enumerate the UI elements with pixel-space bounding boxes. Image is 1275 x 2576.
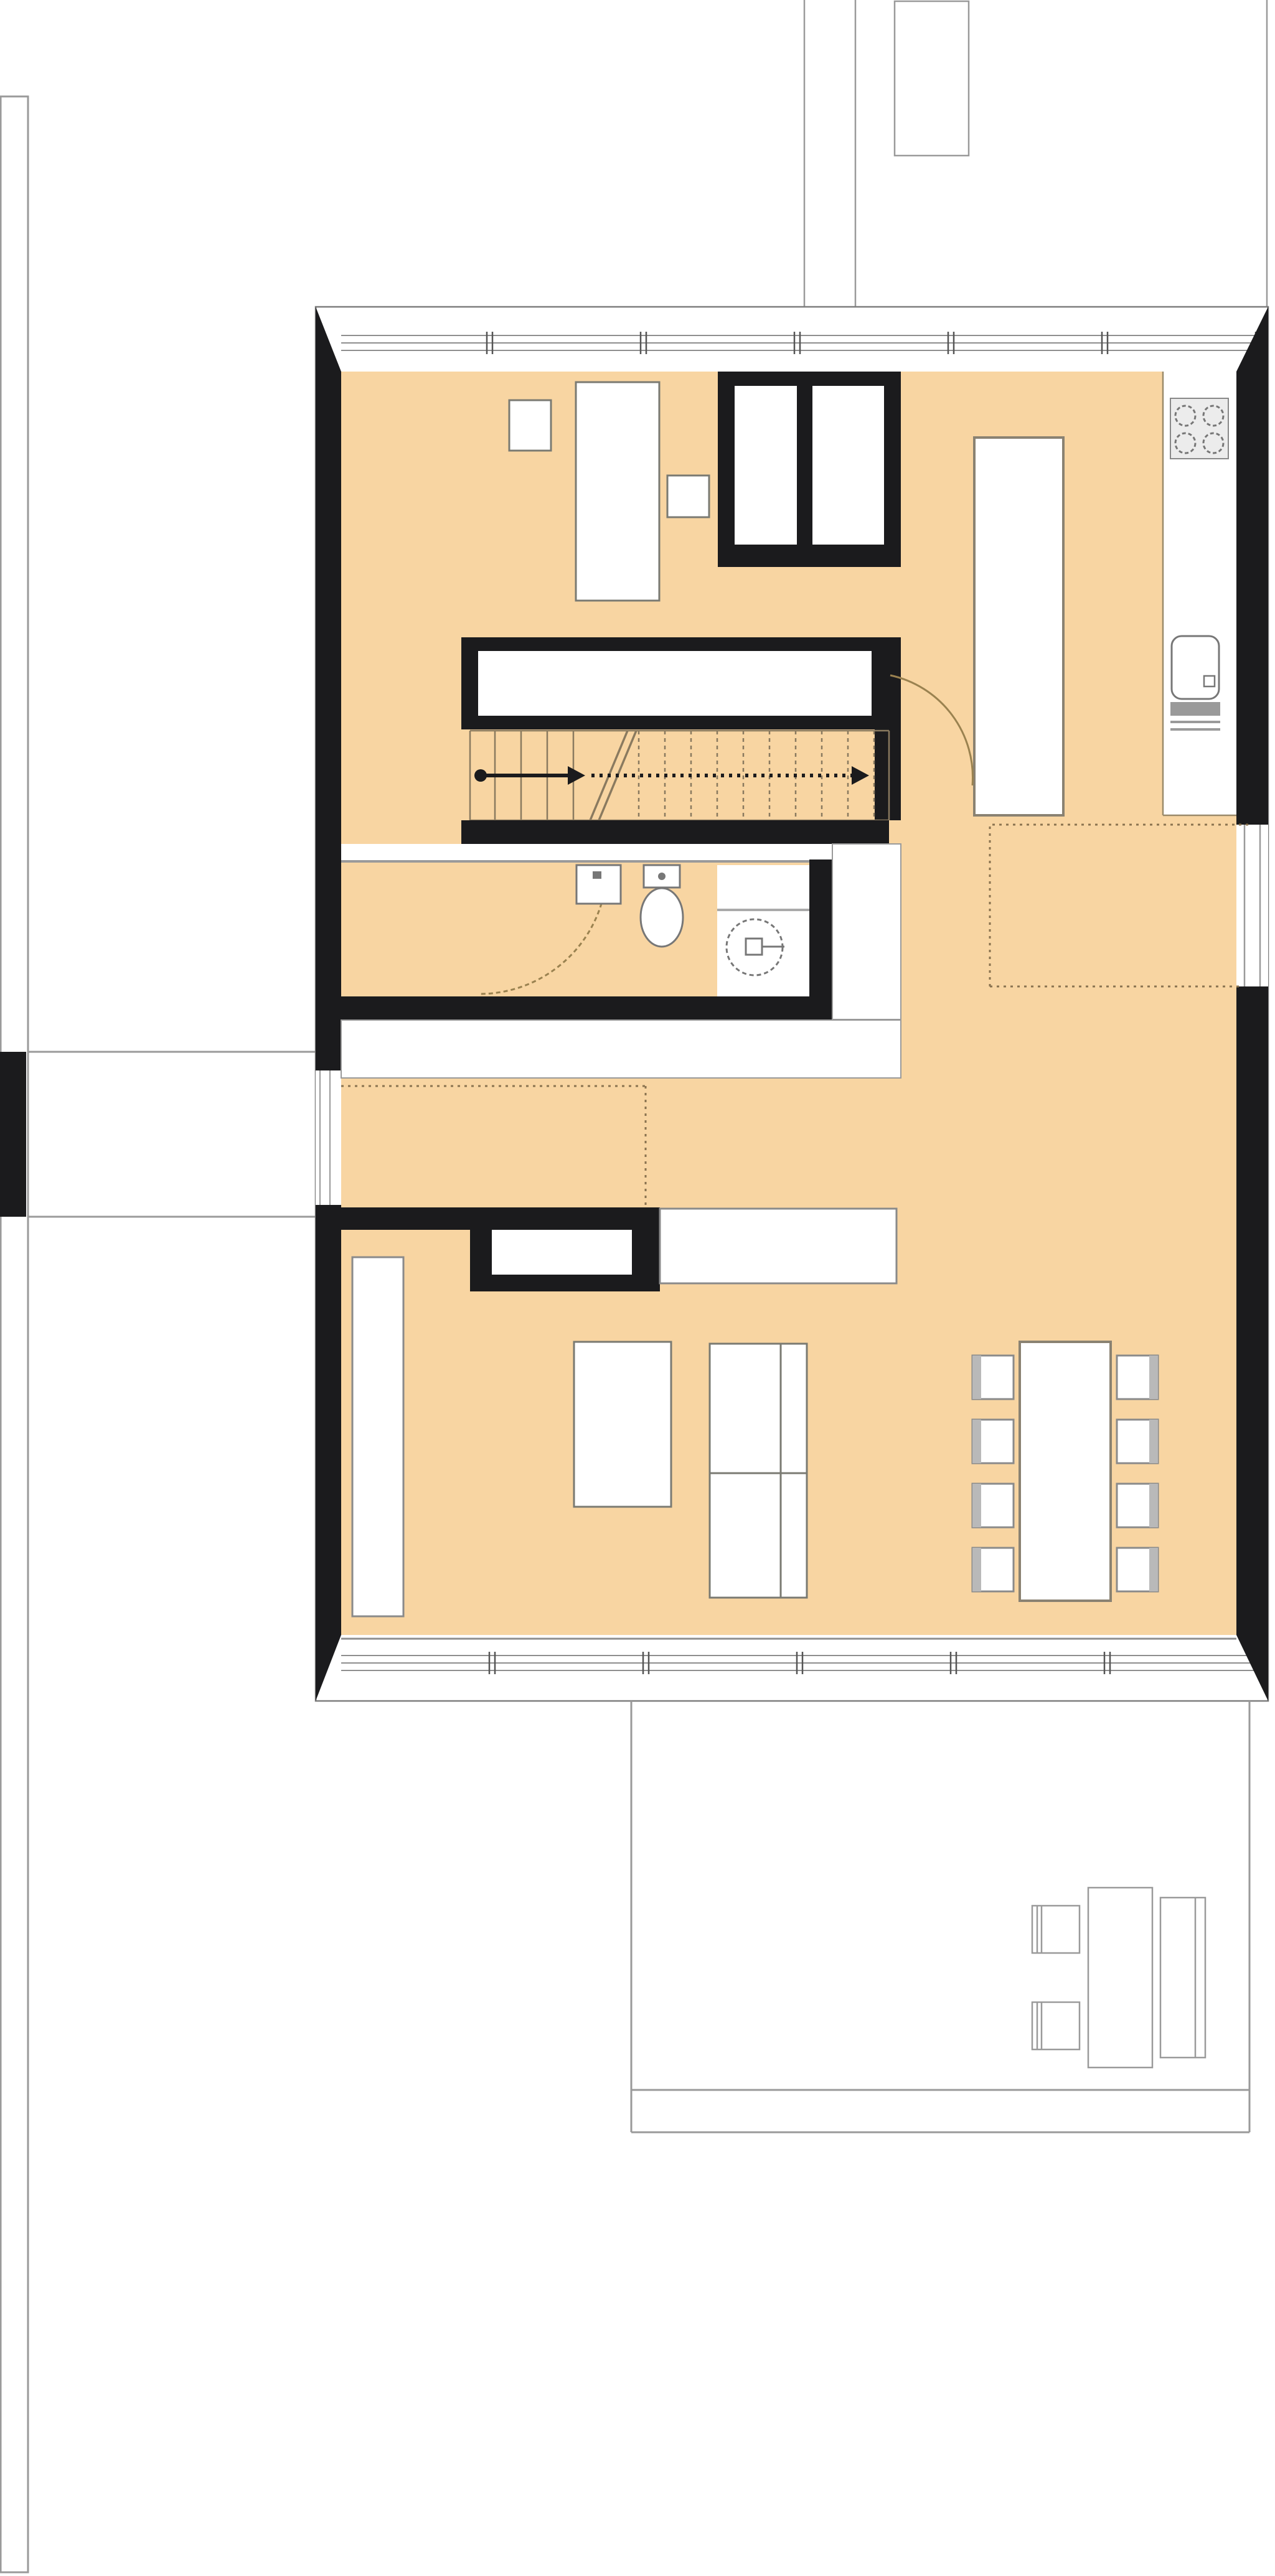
closet-living [660, 1209, 896, 1283]
terrace-chair [1032, 1906, 1080, 1953]
dining-chair [972, 1420, 1014, 1463]
closet-niche [492, 1230, 632, 1275]
porch-wall-block [0, 1052, 26, 1217]
stair-lower-wall [461, 820, 889, 844]
wardrobe-left-wall [352, 1257, 403, 1616]
kitchen-counter-group [1163, 372, 1236, 815]
terrace-door-opening [1236, 825, 1268, 986]
bathroom-partition-gap [341, 844, 889, 863]
dining-chair [1117, 1420, 1158, 1463]
partition-wall [341, 1207, 660, 1230]
terrace-furniture [1032, 1888, 1205, 2068]
dining-chair [972, 1484, 1014, 1527]
floor-plan-drawing [0, 0, 1275, 2576]
service-strip-horizontal [341, 1020, 901, 1078]
closet-top-middle [718, 372, 901, 567]
bed-single [576, 382, 659, 601]
nightstand [667, 475, 709, 517]
stove-icon [1170, 398, 1228, 459]
dining-chair [1117, 1356, 1158, 1399]
nightstand [509, 400, 551, 451]
washbasin-icon [576, 865, 621, 904]
floor-plan-page [0, 0, 1275, 2576]
desk [574, 1342, 671, 1507]
terrace-table [1088, 1888, 1152, 2068]
wall-left-lower [316, 1205, 341, 1635]
entrance-opening [316, 1070, 341, 1205]
bathroom-bottom-wall [341, 996, 832, 1020]
entrance-porch-group [0, 1052, 321, 1217]
dining-chair [1117, 1484, 1158, 1527]
stair-side-wall [875, 729, 901, 820]
wall-right-lower [1236, 986, 1268, 1635]
stair-closet-interior [478, 651, 872, 716]
dining-chair [972, 1548, 1014, 1591]
dining-chair [1117, 1548, 1158, 1591]
wall-right-upper [1236, 372, 1268, 825]
site-strip-group [1, 96, 28, 2572]
laundry-niche [717, 865, 809, 996]
dining-chair [972, 1356, 1014, 1399]
service-strip-vertical [832, 844, 901, 1019]
terrace-sideboard [1160, 1898, 1205, 2058]
terrace [631, 1701, 1249, 2132]
bed-double [710, 1344, 807, 1598]
upper-court-group [804, 0, 1268, 307]
closet-compartment [735, 386, 797, 545]
toilet-icon [641, 865, 683, 947]
site-strip [1, 96, 28, 2572]
dining-table [1020, 1342, 1111, 1601]
bathroom-right-wall [809, 859, 832, 996]
court-shed [895, 1, 969, 156]
closet-compartment [812, 386, 884, 545]
partition-wall [470, 1275, 660, 1291]
entrance-porch [28, 1052, 321, 1217]
wall-left-upper [316, 372, 341, 1070]
kitchen-island [974, 438, 1063, 815]
kitchen-sink-icon [1172, 636, 1219, 699]
terrace-chair [1032, 2002, 1080, 2049]
